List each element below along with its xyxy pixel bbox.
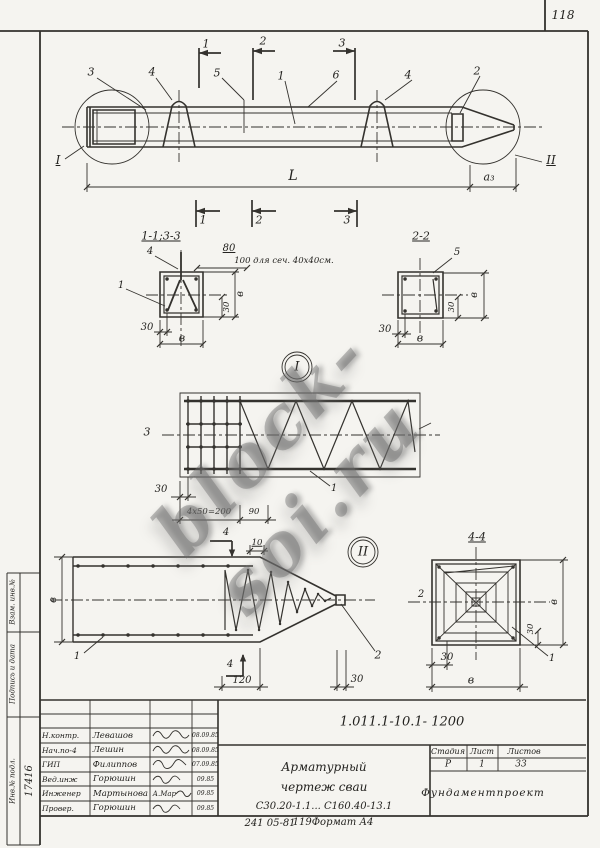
section-title-4-4: 4-4 [468, 532, 486, 543]
section-mark-2-top: 2 [260, 36, 267, 47]
row-name: Мартынова [90, 789, 151, 799]
dim-v-sec44-right: в [550, 599, 560, 605]
section-mark-4-bottom: 4 [227, 660, 233, 670]
section-mark-4-top: 4 [223, 528, 229, 538]
strip-label-inv-podl: Инв.№ подл. [10, 758, 17, 804]
drawing-linework [0, 0, 600, 848]
title-block-row: Инженер Мартынова А.Мар 09.85 [40, 787, 218, 802]
section-title-1-1-3-3: 1-1;3-3 [141, 231, 180, 242]
row-date: 07.09.85 [192, 761, 218, 768]
callout-4b: 4 [405, 70, 412, 81]
row-name: Левашов [90, 731, 150, 741]
sheet-value: 1 [479, 761, 485, 770]
title-block-row: Провер. Горюшин 09.85 [40, 801, 218, 816]
note-100-for-40x40: 100 для сеч. 40х40см. [234, 257, 333, 266]
callout-1-detail-I: 1 [331, 484, 337, 494]
dim-L: L [288, 169, 297, 183]
row-role: Нач.по-4 [40, 746, 90, 755]
dim-30-sec44-h: 30 [441, 653, 454, 663]
callout-5: 5 [214, 68, 221, 79]
row-role: Провер. [40, 804, 90, 813]
dim-v-sec11-bottom: в [179, 333, 185, 344]
detail-II-outline [73, 557, 345, 642]
row-name: Филиппов [90, 760, 150, 770]
row-role: Н.контр. [40, 731, 90, 740]
dim-30-sec11-h: 30 [141, 323, 154, 333]
row-role: ГИП [40, 760, 90, 769]
row-name: Горюшин [90, 803, 151, 813]
section-1-1-loop-bar [168, 252, 197, 310]
dim-90: 90 [249, 508, 260, 517]
drawing-title-line-2: чертеж сваи [281, 781, 368, 793]
dim-v-sec11-right: в [236, 291, 246, 297]
dim-30-detail-I: 30 [155, 485, 168, 495]
strip-label-podpis-data: Подпись и дата [10, 644, 17, 704]
detail-II-bars [73, 557, 253, 642]
organization: Фундаментпроект [421, 788, 545, 799]
row-date: 08.09.85 [192, 747, 218, 754]
dim-v-detail-II: в [49, 597, 59, 603]
title-block-row: ГИП Филиппов 07.09.85 [40, 758, 218, 773]
drawing-title-line-3: С30.20-1.1... С160.40-13.1 [256, 802, 393, 812]
stage-value: Р [445, 761, 451, 770]
callout-2-detail-II: 2 [375, 650, 382, 661]
row-name: Горюшин [90, 774, 151, 784]
inventory-number: 17416 [25, 765, 35, 797]
sheets-value: 33 [515, 761, 526, 770]
section-mark-3-top: 3 [339, 38, 346, 49]
section-4-4-dims [426, 560, 568, 692]
detail-ref-II: II [546, 154, 555, 166]
callout-1-sec44: 1 [549, 654, 555, 664]
callout-3: 3 [88, 67, 95, 78]
dim-v-sec22-right: в [470, 292, 480, 298]
callout-1-sec11: 1 [118, 281, 124, 291]
sheet-label: Лист [470, 748, 494, 756]
row-date: 09.85 [193, 790, 218, 797]
doc-number: 1.011.1-10.1- 1200 [340, 716, 465, 729]
strip-label-vzam-inv: Взам. инв.№ [10, 579, 17, 624]
section-cut-marks [196, 48, 357, 676]
detail-II-bubble-label: II [358, 546, 368, 559]
title-block-row: Вед.инж Горюшин 09.85 [40, 772, 218, 787]
callout-4-sec11: 4 [147, 247, 153, 257]
dim-30-sec22-h: 30 [379, 325, 392, 335]
callout-1: 1 [278, 71, 285, 82]
dim-v-sec44-bottom: в [468, 675, 474, 686]
section-mark-3-bottom: 3 [344, 215, 351, 226]
drawing-sheet: 1233451642IIILа₃1231-1;3-34180100 для се… [0, 0, 600, 848]
callout-2: 2 [474, 66, 481, 77]
callout-leaders [65, 76, 542, 162]
page-number: 118 [552, 9, 575, 21]
dim-lines-elevation [87, 158, 516, 192]
dim-30-sec11-v: 30 [223, 302, 232, 313]
callout-1-detail-II: 1 [74, 652, 80, 662]
detail-II-dims [54, 557, 375, 691]
detail-ref-I: I [56, 154, 61, 166]
dim-30-sec44-v: 30 [527, 624, 536, 635]
dim-v-sec22-bottom: в [417, 333, 423, 344]
row-role: Инженер [40, 789, 90, 798]
row-name: Лешин [90, 745, 150, 755]
format-note: 119Формат А4 [293, 818, 374, 828]
callout-5-sec22: 5 [454, 248, 460, 258]
dim-30-sec22-v: 30 [448, 302, 457, 313]
dim-80: 80 [223, 244, 236, 254]
stage-label: Стадия [431, 748, 465, 756]
dim-10: 10 [252, 539, 263, 548]
sheets-label: Листов [507, 748, 540, 756]
row-signature: А.Мар [151, 790, 193, 798]
callout-4: 4 [149, 67, 156, 78]
callout-2-sec44: 2 [418, 590, 424, 600]
section-mark-1-top: 1 [203, 39, 210, 50]
dim-a3: а₃ [484, 172, 495, 183]
pile-elevation-outline [87, 102, 514, 148]
section-cut-arrowheads [196, 48, 357, 662]
title-block-row: Н.контр. Левашов 08.09.85 [40, 729, 218, 744]
callout-6: 6 [333, 70, 340, 81]
dim-30-tip: 30 [351, 675, 364, 685]
section-mark-2-bottom: 2 [256, 215, 263, 226]
dim-120: 120 [232, 676, 251, 686]
dim-4x50-200: 4х50=200 [187, 508, 231, 517]
detail-I-bubble-label: I [294, 361, 299, 374]
drawing-title-line-1: Арматурный [281, 761, 366, 773]
row-date: 08.09.85 [192, 732, 218, 739]
row-role: Вед.инж [40, 775, 90, 784]
callout-3-detail-I: 3 [144, 427, 151, 438]
section-mark-1-bottom: 1 [200, 215, 207, 226]
row-date: 09.85 [193, 805, 218, 812]
row-date: 09.85 [193, 776, 218, 783]
order-note: 241 05-81 [244, 819, 295, 829]
section-title-2-2: 2-2 [412, 231, 430, 242]
title-block-row: Нач.по-4 Лешин 08.09.85 [40, 743, 218, 758]
